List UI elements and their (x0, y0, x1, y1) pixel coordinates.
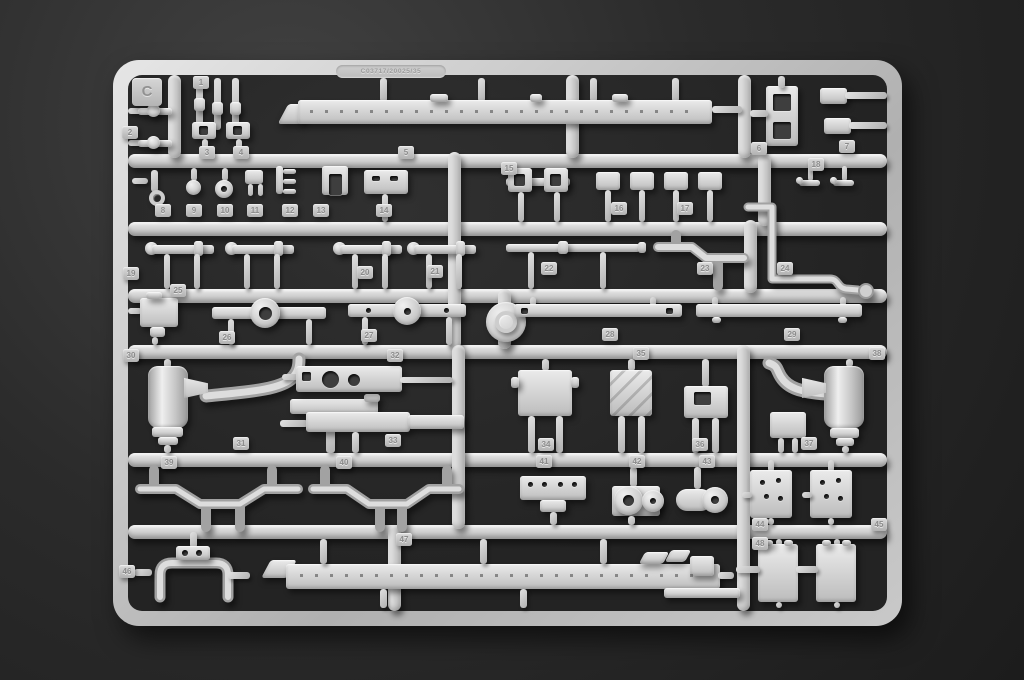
part-hole (836, 478, 841, 483)
sprue-stub (380, 589, 387, 608)
part-number-tag: 8 (155, 204, 171, 217)
part-number-tag: 28 (602, 328, 618, 341)
part-muffler-body (824, 366, 864, 428)
part-box-step (146, 292, 162, 299)
part-tab (511, 377, 519, 388)
part-number-tag: 2 (122, 126, 138, 139)
part-hole (711, 496, 719, 504)
part-number-tag: 1 (193, 76, 209, 89)
sprue-stub (556, 416, 563, 453)
part-paddle (596, 172, 620, 190)
part-detail (690, 556, 714, 576)
part-number-tag: 37 (801, 437, 817, 450)
sprue-stub (382, 254, 388, 289)
sprue-stub (518, 192, 524, 222)
part-valve-knob (830, 177, 837, 184)
part-hole (778, 496, 783, 501)
part-block-holes (364, 170, 408, 194)
part-number-tag: 23 (697, 262, 713, 275)
part-muffler-flange (830, 428, 859, 438)
sprue-stub (194, 254, 200, 289)
part-hole (182, 550, 188, 556)
sprue-stub (528, 416, 535, 453)
part-hole (329, 174, 342, 195)
sprue-stub (274, 254, 280, 289)
part-detail (430, 94, 448, 102)
part-detail (364, 394, 380, 402)
sprue-stub (446, 317, 452, 345)
part-number-tag: 38 (869, 347, 885, 360)
part-hook-arm (151, 170, 158, 192)
mold-code-plate: C03717/20025/35 (336, 65, 446, 78)
part-number-tag: 21 (427, 265, 443, 278)
part-hole (366, 308, 371, 313)
part-number-tag: 35 (633, 347, 649, 360)
part-step-bar-rod (280, 420, 308, 427)
part-number-tag: 27 (361, 329, 377, 342)
part-hole (824, 494, 829, 499)
part-number-tag: 7 (839, 140, 855, 153)
sprue-stub (320, 539, 327, 564)
part-pin-bulge (194, 98, 205, 111)
sprue-stub (456, 254, 462, 289)
part-number-tag: 25 (170, 284, 186, 297)
part-number-tag: 26 (219, 331, 235, 344)
sprue-rail-horizontal (128, 222, 887, 236)
sprue-stub (400, 377, 453, 383)
sprue-stub (796, 566, 818, 573)
sprue-stub (834, 602, 840, 608)
part-number-tag: 20 (357, 266, 373, 279)
part-number-tag: 43 (699, 455, 715, 468)
sprue-stub (778, 76, 785, 88)
part-hole (650, 498, 656, 504)
sprue-rail-vertical (744, 220, 757, 293)
part-rivet-row (300, 574, 704, 577)
part-number-tag: 29 (784, 328, 800, 341)
part-number-tag: 9 (186, 204, 202, 217)
sprue-stub (600, 252, 606, 289)
part-beam (696, 304, 862, 317)
part-hole (221, 186, 227, 192)
sprue-letter-tab: C (132, 78, 162, 106)
part-comb-tooth (283, 189, 296, 194)
part-step-bar (306, 412, 410, 432)
part-hole (348, 374, 360, 386)
part-tab (822, 540, 831, 546)
part-number-tag: 6 (751, 142, 767, 155)
part-number-tag: 41 (536, 455, 552, 468)
sprue-stub (228, 572, 250, 579)
part-hole (322, 371, 339, 388)
part-block (820, 88, 847, 104)
part-number-tag: 44 (752, 518, 768, 531)
part-hole (838, 496, 843, 501)
part-paddle (698, 172, 722, 190)
sprue-stub (712, 418, 719, 453)
sprue-stub (792, 438, 798, 453)
part-hole (444, 308, 449, 313)
part-hole (572, 482, 577, 487)
sprue-stub (802, 492, 812, 498)
sprue-stub (630, 467, 637, 487)
part-number-tag: 40 (336, 456, 352, 469)
sprue-stub (776, 602, 782, 608)
part-paddle (664, 172, 688, 190)
part-number-tag: 33 (385, 434, 401, 447)
part-hole (390, 176, 398, 181)
sprue-stub (718, 572, 734, 579)
part-number-tag: 42 (629, 455, 645, 468)
part-hole (558, 482, 563, 487)
sprue-stub (672, 78, 679, 102)
part-detail (838, 317, 847, 323)
part-hole (773, 122, 791, 139)
sprue-stub (712, 106, 742, 113)
part-number-tag: 34 (538, 438, 554, 451)
sprue-stub (164, 254, 170, 289)
part-hole (820, 480, 825, 485)
sprue-stub (590, 78, 597, 102)
sprue-stub (550, 512, 557, 525)
sprue-stub (132, 178, 148, 184)
part-hole (521, 308, 528, 314)
sprue-stub (352, 432, 359, 453)
sprue-stub (845, 92, 887, 99)
sprue-stub (842, 166, 847, 181)
part-number-tag: 19 (123, 267, 139, 280)
part-box-large (518, 370, 572, 416)
part-number-tag: 12 (282, 204, 298, 217)
sprue-stub (244, 254, 250, 289)
part-number-tag: 31 (233, 437, 249, 450)
part-number-tag: 16 (611, 202, 627, 215)
part-number-tag: 45 (871, 518, 887, 531)
part-detail (540, 500, 566, 512)
part-plate-ribbed (770, 412, 806, 438)
sprue-stub (736, 566, 760, 573)
part-number-tag: 3 (199, 146, 215, 159)
part-shock-rod (340, 245, 402, 254)
part-number-tag: 14 (376, 204, 392, 217)
part-number-tag: 13 (313, 204, 329, 217)
part-number-tag: 11 (247, 204, 263, 217)
sprue-stub (600, 539, 607, 564)
part-tab (784, 540, 793, 546)
sprue-stub (152, 337, 158, 345)
part-comb-tooth (283, 179, 296, 184)
part-shock-rod (232, 245, 294, 254)
sprue-stub (742, 492, 752, 498)
sprue-stub (164, 445, 171, 453)
part-plate-large (816, 544, 856, 602)
part-number-tag: 36 (692, 438, 708, 451)
part-number-tag: 15 (501, 162, 517, 175)
part-rivet-row (310, 110, 700, 113)
part-clamp (245, 170, 263, 184)
part-wide-bracket (520, 476, 586, 500)
part-plate-large (758, 544, 798, 602)
part-detail (530, 94, 542, 102)
part-hole (199, 126, 208, 135)
part-pin-bulge (230, 102, 241, 115)
part-hole (542, 482, 547, 487)
part-clip-knob (147, 136, 160, 149)
part-muffler-body (148, 366, 188, 428)
part-detail (612, 94, 628, 102)
sprue-stub (638, 416, 645, 453)
sprue-stub (707, 190, 713, 222)
part-valve-knob (796, 177, 803, 184)
part-rod-collar (558, 241, 568, 254)
part-block (824, 118, 851, 134)
part-tab (571, 377, 579, 388)
part-number-tag: 30 (123, 349, 139, 362)
part-hole (372, 176, 380, 181)
sprue-rail-vertical (738, 75, 751, 158)
part-plate (810, 470, 852, 518)
part-tab (842, 540, 851, 546)
part-hole (528, 482, 533, 487)
part-clamp-leg (248, 184, 253, 196)
sprue-rail-horizontal (128, 525, 887, 539)
part-number-tag: 32 (387, 349, 403, 362)
sprue-stub (520, 589, 527, 608)
part-hole (259, 307, 272, 320)
part-number-tag: 46 (119, 565, 135, 578)
part-hole (404, 308, 411, 315)
part-detail (712, 317, 721, 323)
sprue-stub (702, 359, 709, 387)
part-shock-rod (152, 245, 214, 254)
part-box-hatch (610, 370, 652, 416)
part-rod-long (506, 244, 640, 252)
part-number-tag: 39 (161, 456, 177, 469)
sprue-stub (849, 122, 887, 129)
sprue-stub (380, 78, 387, 102)
sprue-stub (842, 446, 849, 453)
part-hole (666, 308, 673, 314)
sprue-stub (618, 416, 625, 453)
sprue-stub (478, 78, 485, 102)
sprue-stub (694, 467, 701, 489)
sprue-stub (828, 518, 834, 525)
part-paddle (630, 172, 654, 190)
sprue-stub (628, 516, 635, 525)
part-hole (764, 494, 769, 499)
part-window (694, 392, 711, 405)
sprue-stub (134, 569, 152, 576)
part-hole (776, 478, 781, 483)
sprue-stub (554, 192, 560, 222)
part-number-tag: 5 (398, 146, 414, 159)
part-hole (196, 550, 202, 556)
part-knob (186, 180, 201, 195)
part-hole (302, 372, 311, 381)
sprue-stub (778, 438, 784, 453)
sprue-stub (528, 252, 534, 289)
part-number-tag: 48 (752, 537, 768, 550)
part-number-tag: 47 (396, 533, 412, 546)
sprue-rail-vertical (758, 154, 771, 226)
part-pin-bulge (212, 102, 223, 115)
sprue-stub (306, 319, 312, 345)
part-hole (623, 495, 634, 506)
sprue-stub (768, 518, 774, 525)
part-beam (514, 304, 682, 317)
part-hole (773, 94, 791, 111)
part-clamp-leg (258, 184, 263, 196)
part-shock-rod (414, 245, 476, 254)
part-detail (664, 588, 740, 598)
sprue-photo: 1234567891011121314151617181920212223242… (0, 0, 1024, 680)
sprue-rail-vertical (452, 345, 465, 529)
part-box (140, 298, 178, 327)
part-plate (750, 470, 792, 518)
part-number-tag: 10 (217, 204, 233, 217)
part-comb (276, 166, 283, 194)
part-number-tag: 4 (233, 146, 249, 159)
sprue-stub (639, 190, 645, 222)
part-rod-tip (638, 242, 646, 253)
part-number-tag: 22 (541, 262, 557, 275)
sprue-stub (750, 110, 768, 117)
part-box-hook (150, 327, 165, 337)
part-muffler-foot (836, 438, 854, 446)
part-hole (233, 126, 242, 135)
part-number-tag: 17 (677, 202, 693, 215)
part-hole (514, 174, 525, 186)
part-comb-tooth (283, 169, 296, 174)
part-number-tag: 18 (808, 158, 824, 171)
sprue-stub (480, 539, 487, 564)
part-muffler-flange (152, 427, 183, 437)
part-hole (550, 174, 561, 186)
part-number-tag: 24 (777, 262, 793, 275)
part-hole (760, 480, 765, 485)
part-muffler-foot (158, 437, 178, 445)
part-step-bar-end (408, 415, 464, 429)
